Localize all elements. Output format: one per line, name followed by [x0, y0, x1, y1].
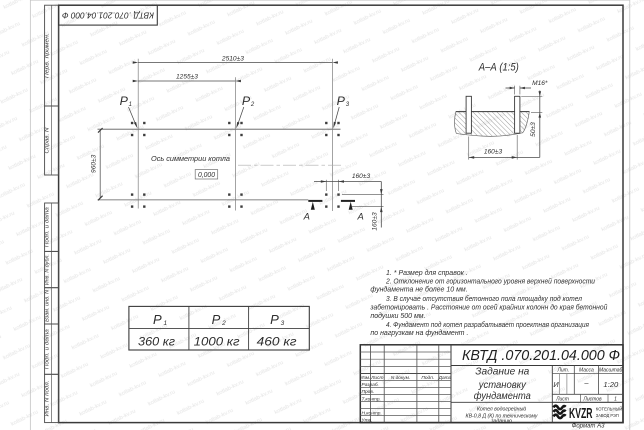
- svg-text:2. Отклонение от горизонтально: 2. Отклонение от горизонтального уровня …: [385, 277, 595, 285]
- svg-text:А: А: [303, 211, 310, 222]
- svg-text:Ось симметрии котла: Ось симметрии котла: [151, 154, 230, 163]
- svg-text:Подп.: Подп.: [421, 375, 434, 381]
- svg-text:Взам. инв. N: Взам. инв. N: [44, 289, 50, 321]
- svg-text:N докум.: N докум.: [391, 375, 410, 381]
- svg-text:Р: Р: [270, 312, 279, 327]
- svg-text:Р: Р: [337, 94, 346, 108]
- svg-text:Изм.: Изм.: [360, 375, 370, 381]
- svg-text:Лист: Лист: [370, 375, 383, 381]
- svg-text:1. * Размер для справок .: 1. * Размер для справок .: [386, 269, 468, 277]
- svg-text:Масса: Масса: [579, 368, 594, 374]
- svg-text:Утв.: Утв.: [362, 417, 373, 423]
- svg-text:Лит.: Лит.: [556, 368, 569, 374]
- svg-text:фундамента: фундамента: [474, 390, 531, 402]
- svg-text:1: 1: [164, 320, 168, 327]
- svg-text:Масштаб: Масштаб: [599, 368, 623, 374]
- svg-text:КОТЕЛЬНЫЙ: КОТЕЛЬНЫЙ: [596, 405, 623, 412]
- svg-text:забетонировать . Расстояние от: забетонировать . Расстояние от осей край…: [369, 304, 607, 312]
- svg-text:360 кг: 360 кг: [138, 334, 175, 348]
- svg-text:KVZR: KVZR: [569, 406, 593, 422]
- svg-text:Р: Р: [153, 312, 162, 327]
- svg-text:Н.контр.: Н.контр.: [362, 410, 382, 416]
- svg-text:заданию: заданию: [490, 418, 512, 424]
- svg-text:160±3: 160±3: [352, 173, 371, 180]
- svg-text:Дата: Дата: [438, 375, 452, 381]
- svg-text:50±3: 50±3: [530, 122, 537, 137]
- svg-text:2: 2: [250, 102, 255, 108]
- svg-text:1255±3: 1255±3: [176, 74, 198, 81]
- svg-text:3: 3: [281, 320, 285, 327]
- svg-text:Подп. и дата: Подп. и дата: [44, 207, 50, 247]
- svg-text:1:20: 1:20: [603, 380, 619, 389]
- svg-text:3. В случае отсутствия бетонно: 3. В случае отсутствия бетонного пола пл…: [386, 295, 582, 303]
- svg-text:Р: Р: [242, 94, 251, 108]
- svg-text:КВТД .070.201.04.000 Ф: КВТД .070.201.04.000 Ф: [462, 348, 620, 364]
- svg-text:1: 1: [614, 397, 617, 403]
- svg-text:Инв. N подл.: Инв. N подл.: [44, 381, 50, 417]
- svg-text:Листов: Листов: [582, 397, 602, 403]
- svg-text:1: 1: [129, 102, 132, 108]
- svg-text:460 кг: 460 кг: [257, 334, 297, 348]
- svg-text:2: 2: [221, 320, 226, 327]
- svg-text:А: А: [356, 211, 363, 222]
- svg-text:Формат А3: Формат А3: [572, 423, 605, 429]
- svg-text:960±3: 960±3: [91, 154, 98, 173]
- svg-text:2510±3: 2510±3: [221, 55, 244, 62]
- svg-text:Инв. N дубл.: Инв. N дубл.: [44, 254, 50, 285]
- svg-text:4. Фундамент под котел разраба: 4. Фундамент под котел разрабатывает про…: [386, 321, 589, 329]
- svg-text:ЗАВОД РЭП: ЗАВОД РЭП: [596, 413, 619, 418]
- svg-text:фундамента не более 10 мм.: фундамента не более 10 мм.: [370, 286, 467, 294]
- svg-text:Задание на: Задание на: [475, 366, 529, 377]
- svg-text:Лист: Лист: [555, 397, 569, 403]
- svg-text:КВТД .070.201.04.000 Ф: КВТД .070.201.04.000 Ф: [62, 10, 154, 20]
- svg-text:Котел водогрейный: Котел водогрейный: [477, 406, 526, 413]
- svg-text:Подп. и дата: Подп. и дата: [44, 329, 50, 369]
- svg-text:160±3: 160±3: [371, 212, 378, 231]
- svg-text:Перв. примен.: Перв. примен.: [44, 33, 50, 78]
- svg-text:Т.контр.: Т.контр.: [362, 396, 381, 402]
- svg-text:И: И: [553, 380, 559, 389]
- svg-text:160±3: 160±3: [484, 148, 503, 155]
- svg-text:по нагрузкам на фундамент .: по нагрузкам на фундамент .: [370, 329, 468, 337]
- svg-text:подушки 500 мм.: подушки 500 мм.: [370, 312, 425, 320]
- svg-text:Р: Р: [212, 312, 221, 327]
- svg-text:1000 кг: 1000 кг: [194, 334, 240, 348]
- svg-text:–: –: [583, 378, 589, 387]
- svg-text:Справ. N: Справ. N: [44, 127, 50, 153]
- svg-text:0,000: 0,000: [198, 170, 216, 179]
- svg-text:М16*: М16*: [532, 80, 548, 87]
- svg-text:А–А (1:5): А–А (1:5): [478, 62, 519, 74]
- svg-text:установку: установку: [478, 380, 527, 391]
- svg-text:Разраб.: Разраб.: [362, 382, 379, 388]
- svg-text:Пров.: Пров.: [362, 389, 375, 395]
- svg-text:Р: Р: [120, 94, 129, 108]
